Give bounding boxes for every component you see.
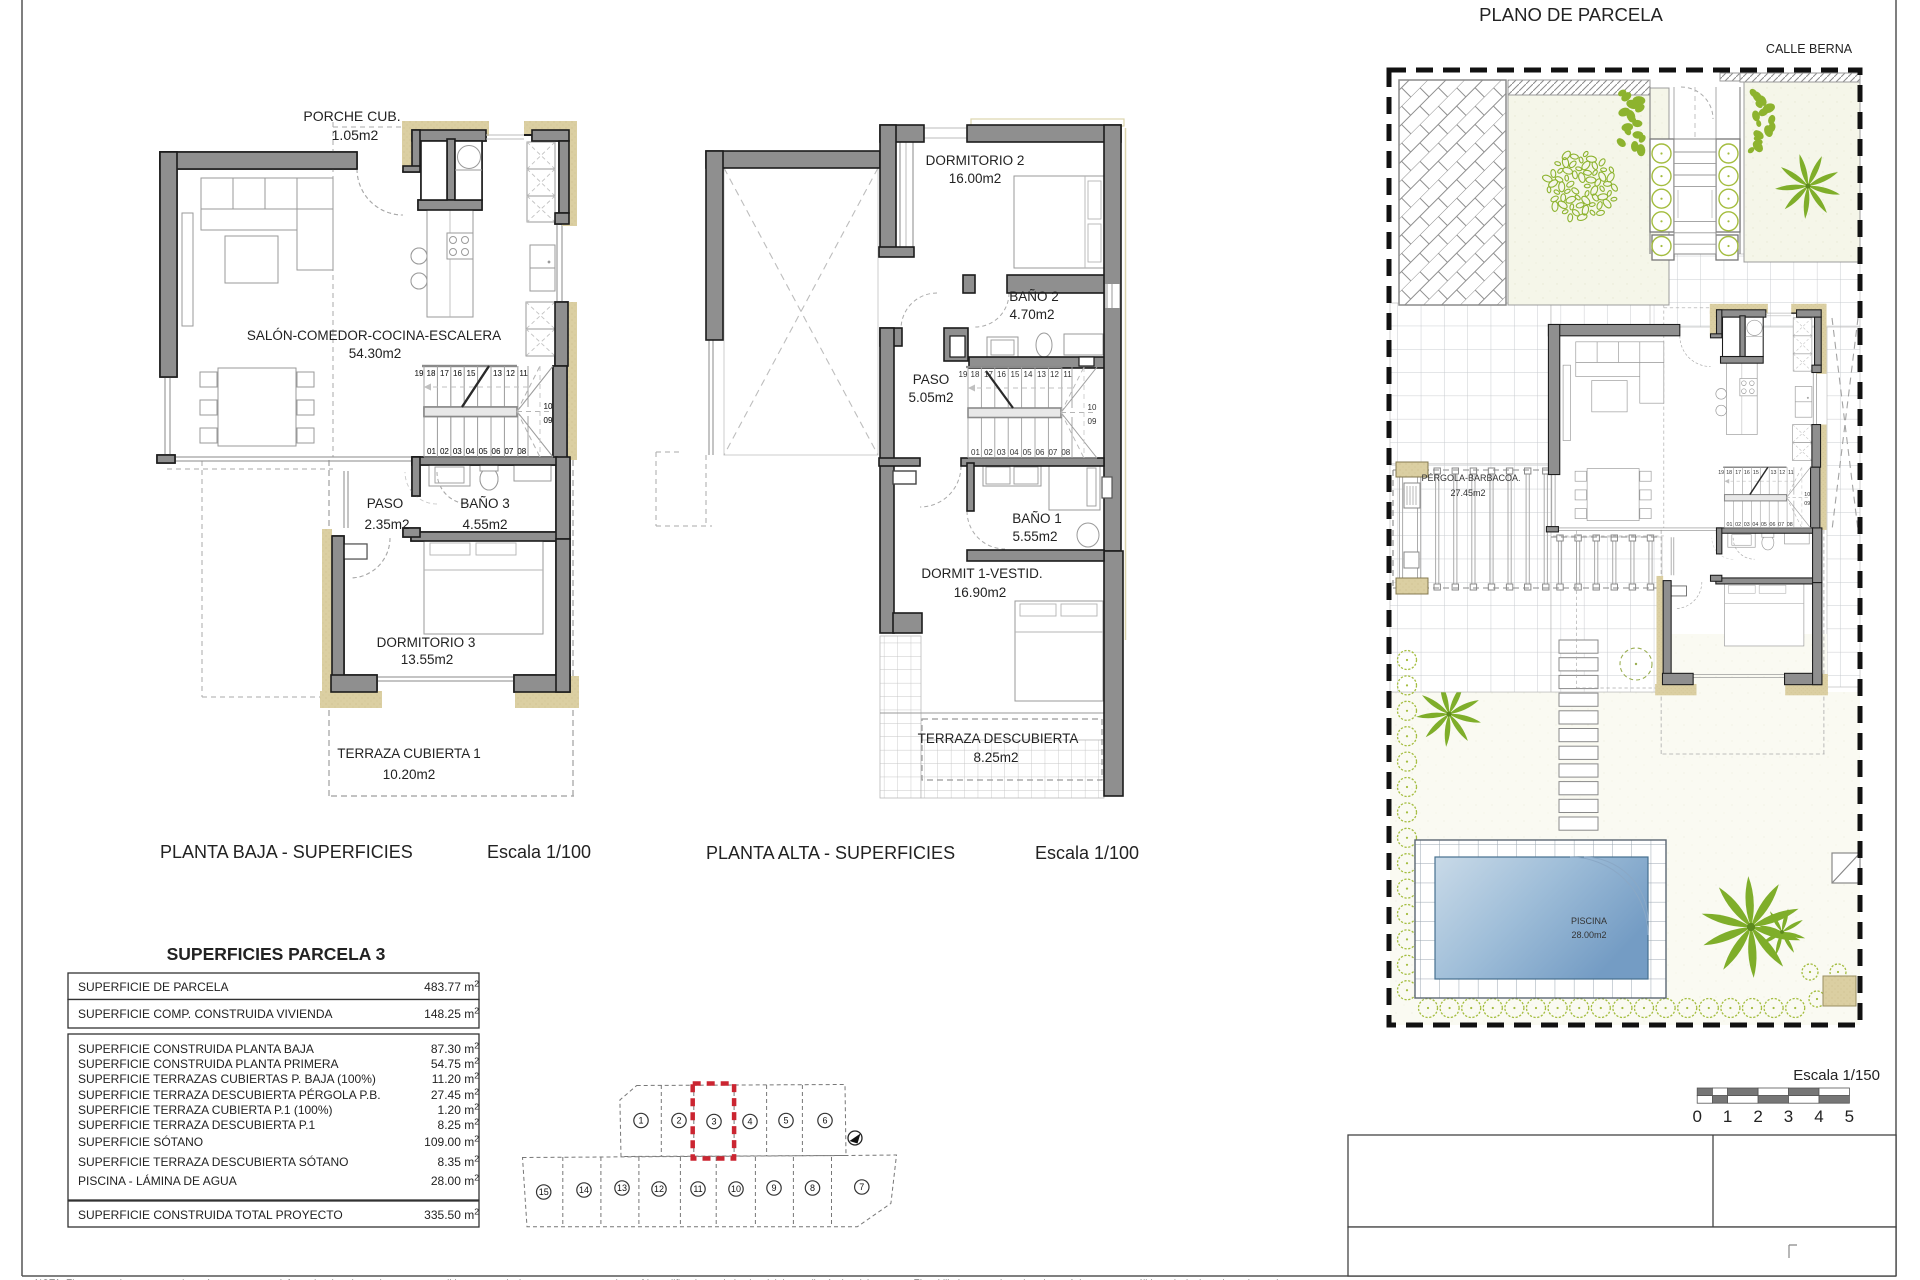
svg-text:4: 4 — [1814, 1107, 1823, 1126]
svg-text:10: 10 — [731, 1184, 741, 1194]
svg-text:4: 4 — [747, 1117, 752, 1127]
svg-text:335.50 m2: 335.50 m2 — [424, 1207, 479, 1223]
svg-text:5: 5 — [783, 1116, 788, 1126]
svg-text:SALÓN-COMEDOR-COCINA-ESCALERA: SALÓN-COMEDOR-COCINA-ESCALERA — [247, 328, 501, 343]
svg-text:DORMITORIO 3: DORMITORIO 3 — [377, 635, 476, 650]
svg-text:DORMITORIO 2: DORMITORIO 2 — [926, 153, 1025, 168]
svg-text:SUPERFICIE SÓTANO: SUPERFICIE SÓTANO — [78, 1134, 203, 1149]
svg-text:15: 15 — [539, 1187, 549, 1197]
svg-text:6: 6 — [822, 1116, 827, 1126]
svg-text:SUPERFICIE CONSTRUIDA PLANTA P: SUPERFICIE CONSTRUIDA PLANTA PRIMERA — [78, 1057, 339, 1071]
svg-text:16.00m2: 16.00m2 — [949, 171, 1002, 186]
svg-text:SUPERFICIE TERRAZA DESCUBIERTA: SUPERFICIE TERRAZA DESCUBIERTA PÉRGOLA P… — [78, 1087, 381, 1102]
svg-text:0: 0 — [1692, 1107, 1701, 1126]
svg-text:54.75 m2: 54.75 m2 — [431, 1056, 479, 1072]
svg-text:TERRAZA DESCUBIERTA: TERRAZA DESCUBIERTA — [918, 731, 1079, 746]
svg-text:1.20 m2: 1.20 m2 — [438, 1102, 480, 1118]
svg-text:PORCHE CUB.: PORCHE CUB. — [303, 108, 400, 124]
svg-text:7: 7 — [859, 1182, 864, 1192]
svg-text:BAÑO 1: BAÑO 1 — [1012, 511, 1062, 526]
svg-text:28.00m2: 28.00m2 — [1571, 930, 1606, 940]
svg-text:12: 12 — [654, 1184, 664, 1194]
svg-text:PASO: PASO — [367, 496, 404, 511]
svg-text:2.35m2: 2.35m2 — [364, 517, 409, 532]
svg-text:27.45 m2: 27.45 m2 — [431, 1087, 479, 1103]
svg-text:1: 1 — [638, 1116, 643, 1126]
svg-text:5.05m2: 5.05m2 — [908, 390, 953, 405]
svg-text:SUPERFICIE CONSTRUIDA TOTAL PR: SUPERFICIE CONSTRUIDA TOTAL PROYECTO — [78, 1208, 343, 1222]
svg-text:16.90m2: 16.90m2 — [954, 585, 1007, 600]
svg-text:CALLE BERNA: CALLE BERNA — [1766, 42, 1853, 56]
svg-text:DORMIT 1-VESTID.: DORMIT 1-VESTID. — [921, 566, 1042, 581]
svg-text:2: 2 — [676, 1116, 681, 1126]
svg-text:PASO: PASO — [913, 372, 950, 387]
svg-text:Escala 1/100: Escala 1/100 — [487, 842, 591, 862]
svg-text:109.00 m2: 109.00 m2 — [424, 1134, 479, 1150]
svg-text:SUPERFICIE DE PARCELA: SUPERFICIE DE PARCELA — [78, 980, 228, 994]
svg-text:9: 9 — [771, 1183, 776, 1193]
svg-text:54.30m2: 54.30m2 — [349, 346, 402, 361]
svg-text:4.70m2: 4.70m2 — [1009, 307, 1054, 322]
svg-text:4.55m2: 4.55m2 — [462, 517, 507, 532]
svg-text:PISCINA: PISCINA — [1571, 916, 1607, 926]
svg-text:5.55m2: 5.55m2 — [1012, 529, 1057, 544]
svg-text:Escala 1/150: Escala 1/150 — [1793, 1067, 1880, 1084]
svg-text:5: 5 — [1845, 1107, 1854, 1126]
svg-text:27.45m2: 27.45m2 — [1450, 488, 1485, 498]
svg-text:SUPERFICIE TERRAZA DESCUBIERTA: SUPERFICIE TERRAZA DESCUBIERTA P.1 — [78, 1118, 316, 1132]
svg-text:SUPERFICIE TERRAZA CUBIERTA P.: SUPERFICIE TERRAZA CUBIERTA P.1 (100%) — [78, 1103, 333, 1117]
svg-text:BAÑO 3: BAÑO 3 — [460, 496, 510, 511]
svg-text:PÉRGOLA-BARBACOA.: PÉRGOLA-BARBACOA. — [1421, 473, 1520, 483]
svg-text:SUPERFICIE COMP. CONSTRUIDA VI: SUPERFICIE COMP. CONSTRUIDA VIVIENDA — [78, 1007, 333, 1021]
svg-text:SUPERFICIES PARCELA 3: SUPERFICIES PARCELA 3 — [167, 944, 386, 964]
svg-text:11: 11 — [693, 1184, 702, 1194]
svg-text:Escala 1/100: Escala 1/100 — [1035, 843, 1139, 863]
svg-text:148.25 m2: 148.25 m2 — [424, 1006, 479, 1022]
svg-text:PLANTA ALTA - SUPERFICIES: PLANTA ALTA - SUPERFICIES — [706, 843, 955, 863]
svg-text:SUPERFICIE TERRAZAS CUBIERTAS: SUPERFICIE TERRAZAS CUBIERTAS P. BAJA (1… — [78, 1072, 376, 1086]
svg-text:1.05m2: 1.05m2 — [332, 127, 379, 143]
svg-text:8.35 m2: 8.35 m2 — [438, 1154, 480, 1170]
svg-text:11.20 m2: 11.20 m2 — [432, 1071, 479, 1087]
svg-text:2: 2 — [1753, 1107, 1762, 1126]
svg-text:PLANO DE PARCELA: PLANO DE PARCELA — [1479, 4, 1663, 25]
svg-text:3: 3 — [1784, 1107, 1793, 1126]
svg-text:483.77 m2: 483.77 m2 — [424, 979, 479, 995]
svg-text:13: 13 — [617, 1183, 627, 1193]
svg-text:87.30 m2: 87.30 m2 — [431, 1041, 479, 1057]
svg-text:13.55m2: 13.55m2 — [401, 652, 454, 667]
svg-text:14: 14 — [579, 1185, 589, 1195]
svg-text:10.20m2: 10.20m2 — [383, 767, 436, 782]
svg-text:BAÑO 2: BAÑO 2 — [1009, 289, 1059, 304]
svg-text:SUPERFICIE CONSTRUIDA PLANTA B: SUPERFICIE CONSTRUIDA PLANTA BAJA — [78, 1042, 314, 1056]
svg-text:PISCINA - LÁMINA DE AGUA: PISCINA - LÁMINA DE AGUA — [78, 1173, 237, 1188]
svg-text:8.25 m2: 8.25 m2 — [438, 1117, 480, 1133]
svg-text:PLANTA BAJA - SUPERFICIES: PLANTA BAJA - SUPERFICIES — [160, 842, 413, 862]
svg-text:8.25m2: 8.25m2 — [973, 750, 1018, 765]
svg-text:8: 8 — [810, 1183, 815, 1193]
svg-text:3: 3 — [711, 1117, 716, 1127]
svg-text:28.00 m2: 28.00 m2 — [431, 1173, 479, 1189]
svg-text:TERRAZA CUBIERTA 1: TERRAZA CUBIERTA 1 — [337, 746, 481, 761]
svg-text:1: 1 — [1723, 1107, 1732, 1126]
svg-text:SUPERFICIE TERRAZA DESCUBIERTA: SUPERFICIE TERRAZA DESCUBIERTA SÓTANO — [78, 1154, 349, 1169]
